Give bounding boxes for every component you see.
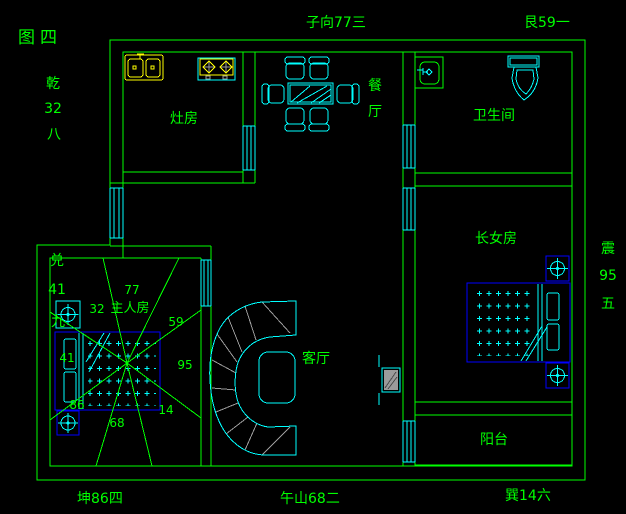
corridor-wall [403,52,415,466]
dining-label-char2: 厅 [368,104,382,120]
compass-bottom-right-label: 巽14六 [505,488,551,504]
outer-wall [37,40,585,480]
dining-chair [309,57,329,79]
tv-icon [379,355,400,405]
compass-left-lower-char2: 九 [51,314,65,330]
daughter-room-wall [415,402,572,415]
dining-chair [285,57,305,79]
compass-left-upper-char2: 八 [47,127,61,143]
window-left-icon [109,188,124,238]
dining-label-char1: 餐 [368,78,382,94]
stove-icon [198,58,235,80]
dining-chair [337,84,359,104]
compass-left-upper-num: 32 [44,101,62,117]
window-daughter-icon [402,188,416,230]
star-number-bottom-right: 14 [158,403,173,417]
compass-top-label: 子向77三 [306,15,366,31]
compass-right-num: 95 [599,268,617,284]
compass-left-upper-label: 乾 32 八 [44,76,62,143]
master-room-label: 主人房 [110,300,149,316]
balcony-label: 阳台 [480,432,508,448]
compass-right-char: 震 [601,241,615,257]
star-number-top-left: 32 [89,302,104,316]
dining-chair [309,108,329,131]
compass-right-char2: 五 [601,296,615,312]
compass-left-lower-char: 兑 [50,253,64,269]
compass-bottom-center-label: 午山68二 [280,491,340,507]
star-number-bottom: 68 [109,416,124,430]
kitchen-sink-icon [125,54,163,80]
compass-top-right-label: 艮59一 [524,15,570,31]
cad-floor-plan: 灶房 餐 厅 卫生间 长女房 主人房 客厅 阳台 77 59 95 14 68 … [0,0,626,514]
dining-chair [285,108,305,131]
compass-left-upper-char: 乾 [46,76,60,92]
bathroom-label: 卫生间 [473,108,515,124]
daughter-bed [467,283,570,362]
compass-bottom-left-label: 坤86四 [77,491,123,507]
compass-left-lower-label: 兑 41 九 [48,253,66,330]
kitchen-label: 灶房 [170,111,198,127]
living-room-label: 客厅 [302,350,330,367]
window-kitchen-icon [242,126,256,170]
figure-title: 图四 [18,28,62,48]
balcony-door-icon [402,421,416,462]
bedside-lamp-icon [546,256,569,281]
compass-right-label: 震 95 五 [599,241,617,312]
sofa [210,301,296,455]
dining-chairs [262,57,359,131]
toilet-icon [508,56,539,100]
star-number-top-right: 59 [168,315,183,329]
windows [109,125,416,462]
dining-chair [262,84,284,104]
bathroom-wall [415,173,572,186]
window-master-icon [200,260,213,306]
bedside-lamp-icon [546,363,569,388]
compass-left-lower-num: 41 [48,282,66,298]
walls [37,40,585,480]
window-bathroom-icon [402,125,416,168]
star-number-right: 95 [177,358,192,372]
master-top-wall [110,246,211,258]
star-number-bottom-left: 86 [69,398,84,412]
wash-basin-icon [415,57,443,88]
floor-plan-canvas: 灶房 餐 厅 卫生间 长女房 主人房 客厅 阳台 77 59 95 14 68 … [0,0,626,514]
star-number-left: 41 [59,351,74,365]
coffee-table [259,352,295,403]
dining-table [288,83,333,104]
daughter-room-label: 长女房 [475,230,517,247]
star-number-top: 77 [124,283,139,297]
bedside-lamp-icon [57,411,79,435]
